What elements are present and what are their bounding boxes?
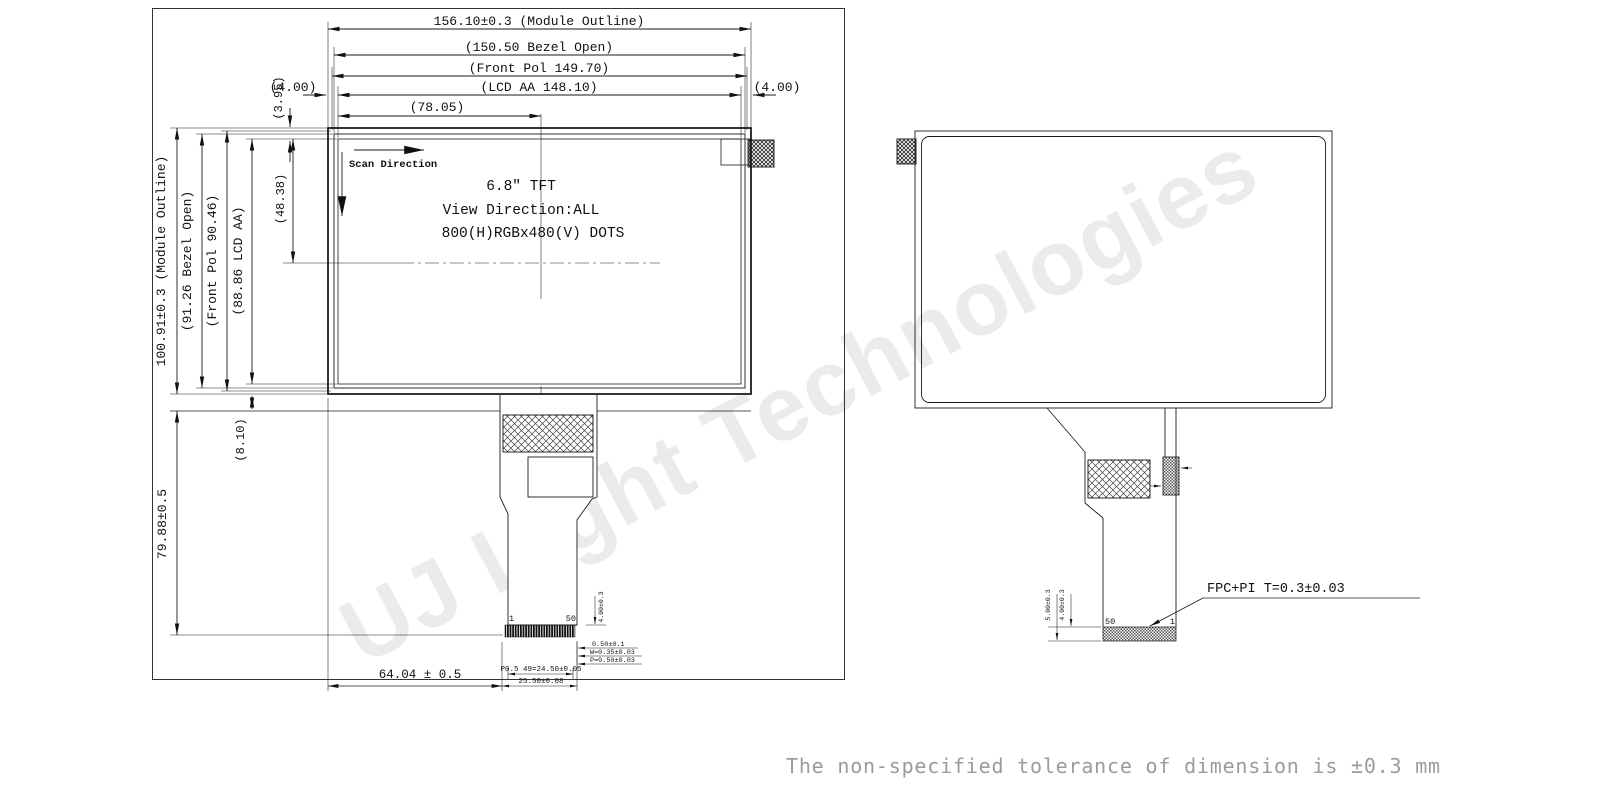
dim-contact-length: 4.00±0.3 [598,591,605,622]
dim-frontpol-height: (Front Pol 90.46) [205,195,220,328]
rear-pin50-label: 50 [1105,617,1115,627]
front-pin1-label: 1 [509,614,514,624]
tail-adhesive-hatch [503,415,593,452]
dim-pin-tip: 0.50±0.1 [592,641,625,649]
dim-rear-contact-length: 4.00±0.3 [1059,589,1066,620]
dim-fpc-length: 79.88±0.5 [155,489,170,559]
rear-stiffener-small [1163,457,1179,495]
dim-lcdaa-height: (88.86 LCD AA) [231,206,246,315]
dim-pitch-span: P0.5 49=24.50±0.05 [500,666,582,674]
front-pin50-label: 50 [566,614,576,624]
dim-half-width: (78.05) [410,100,465,115]
dim-bezel-width: (150.50 Bezel Open) [465,40,613,55]
dim-edge-right: (4.00) [754,80,801,95]
dim-lcdaa-width: (LCD AA 148.10) [480,80,597,95]
drawing-sheet: UJ Light Technologies [0,0,1600,800]
dim-module-width: 156.10±0.3 (Module Outline) [434,14,645,29]
dim-connector-offset: 64.04 ± 0.5 [379,668,462,682]
fpc-spec-label: FPC+PI T=0.3±0.03 [1207,582,1345,597]
dim-finger-pitch: P=0.50±0.03 [590,657,635,665]
dim-bend-gap: (8.10) [234,418,248,461]
dim-half-height: (48.38) [274,174,288,224]
rear-pin1-label: 1 [1170,617,1175,627]
rear-adhesive-hatch [1088,460,1150,498]
scan-direction-label: Scan Direction [349,159,437,171]
rear-pin-band [1103,627,1176,641]
dim-finger-width: W=0.35±0.03 [590,649,635,657]
dim-connector-width: 25.50±0.08 [518,678,563,686]
dim-module-height: 100.91±0.3 (Module Outline) [154,156,169,367]
rear-corner-hatch [897,139,916,164]
display-size-label: 6.8″ TFT [486,179,556,195]
dim-top-margin: (3.95) [272,76,286,119]
resolution-label: 800(H)RGBx480(V) DOTS [442,226,625,242]
watermark-text: UJ Light Technologies [325,114,1275,684]
view-direction-label: View Direction:ALL [443,203,600,219]
front-pin-band [505,625,575,637]
front-corner-hatch [748,140,774,167]
dim-stiffener-length: 5.00±0.3 [1045,589,1052,620]
dim-frontpol-width: (Front Pol 149.70) [469,61,609,76]
dim-bezel-height: (91.26 Bezel Open) [180,191,195,331]
tolerance-note: The non-specified tolerance of dimension… [786,754,1441,778]
